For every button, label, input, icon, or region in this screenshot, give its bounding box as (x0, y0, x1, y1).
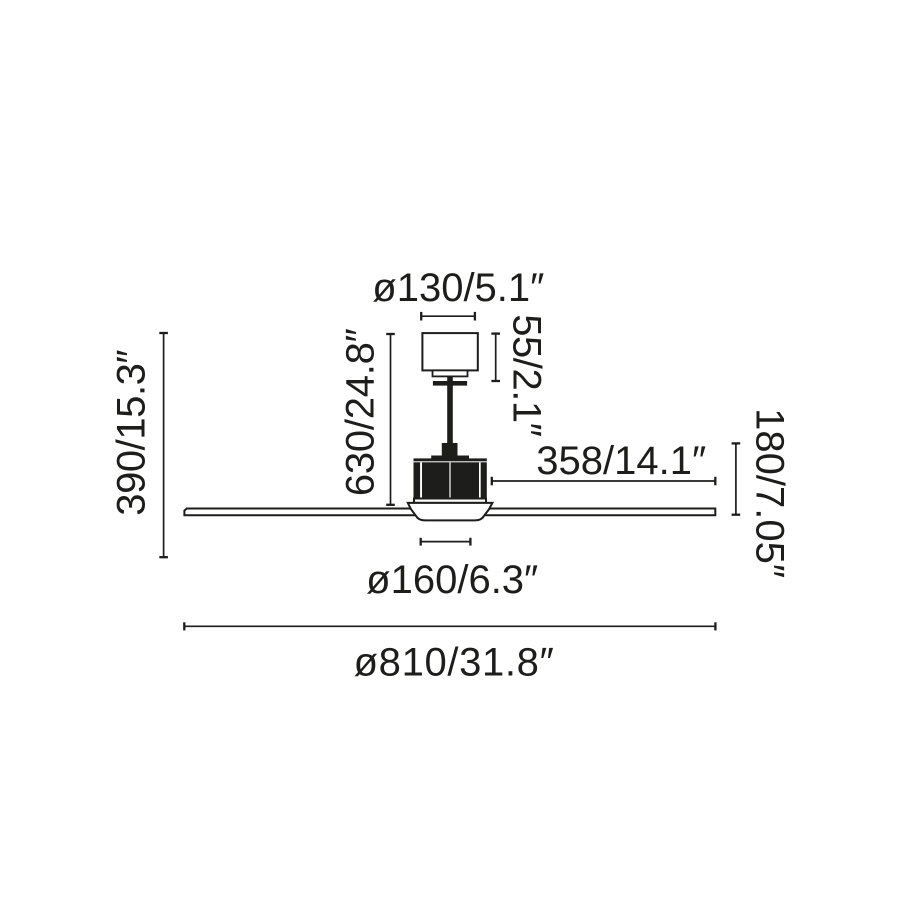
svg-text:55/2.1″: 55/2.1″ (505, 314, 549, 437)
svg-text:ø810/31.8″: ø810/31.8″ (354, 641, 555, 685)
svg-text:630/24.8″: 630/24.8″ (339, 328, 383, 496)
svg-text:390/15.3″: 390/15.3″ (110, 350, 154, 516)
svg-text:ø130/5.1″: ø130/5.1″ (372, 266, 544, 310)
svg-text:ø160/6.3″: ø160/6.3″ (366, 558, 538, 602)
svg-text:180/7.05″: 180/7.05″ (748, 408, 792, 578)
svg-text:358/14.1″: 358/14.1″ (536, 439, 706, 483)
